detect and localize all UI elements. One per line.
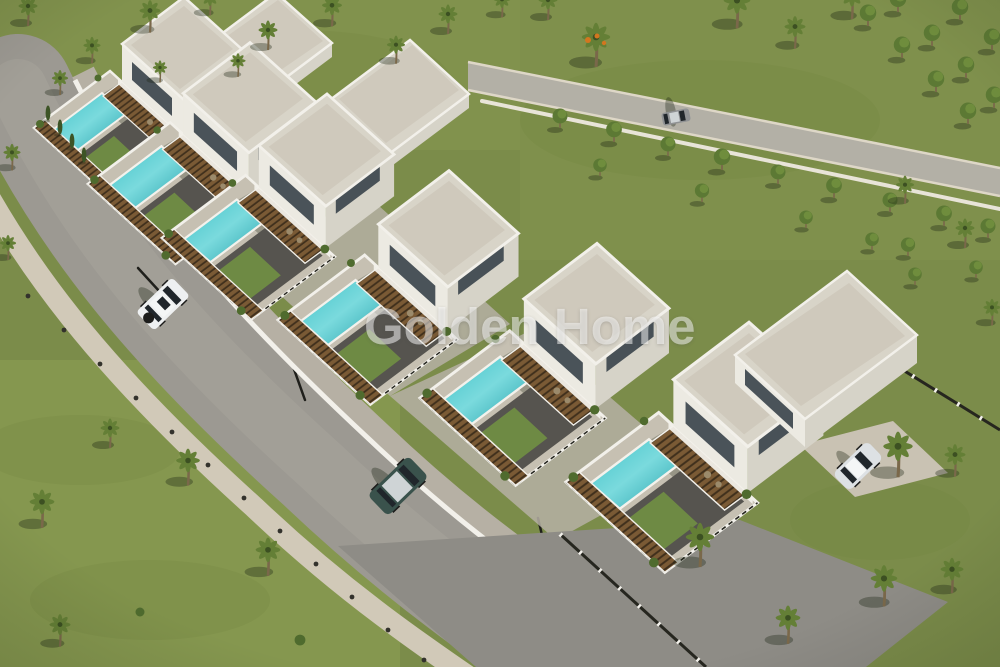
aerial-render: Golden Home [0,0,1000,667]
scene-svg [0,0,1000,667]
vignette [0,0,1000,667]
